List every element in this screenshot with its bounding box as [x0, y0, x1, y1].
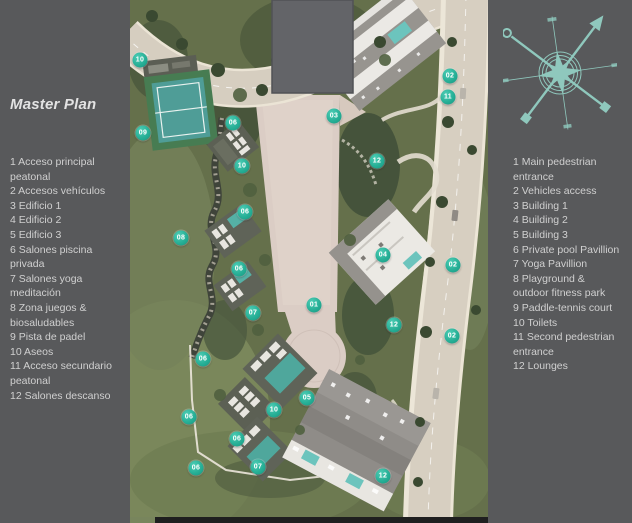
paddle-tennis-court [144, 69, 219, 150]
legend-english: 1 Main pedestrian entrance2 Vehicles acc… [513, 155, 621, 374]
redaction-box [272, 0, 353, 93]
site-plan-aerial [130, 0, 488, 523]
legend-item-es-8: 8 Zona juegos & biosaludables [10, 301, 122, 330]
legend-item-en-9: 9 Paddle-tennis court [513, 301, 621, 316]
legend-item-en-7: 7 Yoga Pavillion [513, 257, 621, 272]
legend-item-en-2: 2 Vehicles access [513, 184, 621, 199]
legend-item-es-6: 6 Salones piscina privada [10, 243, 122, 272]
page-background: { "title": "Master Plan", "legend_es": {… [0, 0, 632, 523]
legend-item-es-3: 3 Edificio 1 [10, 199, 122, 214]
legend-spanish: 1 Acceso principal peatonal2 Accesos veh… [10, 155, 122, 403]
legend-item-en-11: 11 Second pedestrian entrance [513, 330, 621, 359]
photo-bottom-edge [155, 517, 488, 523]
legend-item-en-6: 6 Private pool Pavillion [513, 243, 621, 258]
legend-item-en-8: 8 Playground & outdoor fitness park [513, 272, 621, 301]
compass-rose-icon [503, 14, 617, 132]
legend-item-es-2: 2 Accesos vehículos [10, 184, 122, 199]
legend-item-en-1: 1 Main pedestrian entrance [513, 155, 621, 184]
legend-item-es-11: 11 Acceso secundario peatonal [10, 359, 122, 388]
legend-item-en-4: 4 Building 2 [513, 213, 621, 228]
legend-item-en-5: 5 Building 3 [513, 228, 621, 243]
legend-item-es-10: 10 Aseos [10, 345, 122, 360]
page-title: Master Plan [10, 96, 96, 113]
legend-item-es-12: 12 Salones descanso [10, 389, 122, 404]
legend-item-es-1: 1 Acceso principal peatonal [10, 155, 122, 184]
legend-item-en-10: 10 Toilets [513, 316, 621, 331]
legend-item-es-7: 7 Salones yoga meditación [10, 272, 122, 301]
legend-item-es-4: 4 Edificio 2 [10, 213, 122, 228]
legend-item-es-9: 9 Pista de padel [10, 330, 122, 345]
legend-item-es-5: 5 Edificio 3 [10, 228, 122, 243]
legend-item-en-3: 3 Building 1 [513, 199, 621, 214]
legend-item-en-12: 12 Lounges [513, 359, 621, 374]
